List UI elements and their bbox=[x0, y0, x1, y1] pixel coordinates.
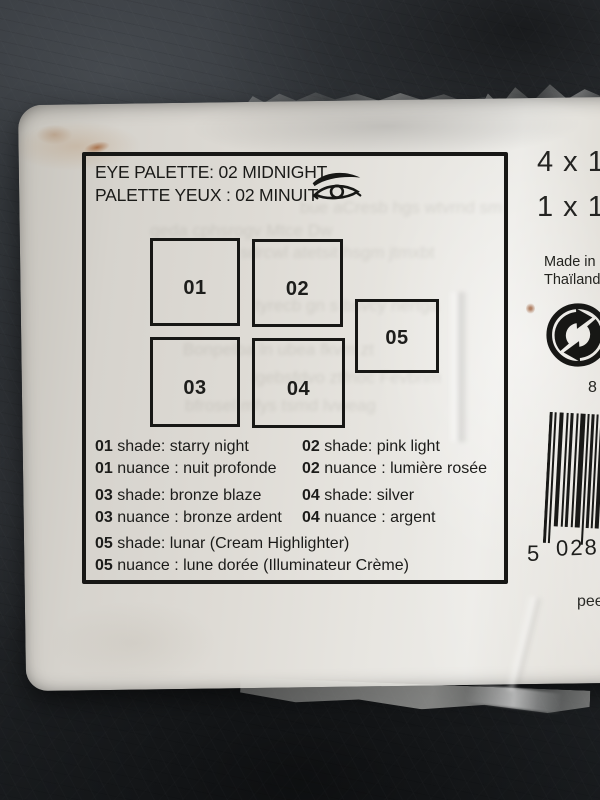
shade-entry-05: 05 shade: lunar (Cream Highlighter) 05 n… bbox=[95, 533, 409, 576]
eye-icon bbox=[308, 167, 364, 207]
pan-number: 05 bbox=[385, 327, 408, 350]
shade-line-en: 04 shade: silver bbox=[302, 485, 435, 507]
shade-entry-04: 04 shade: silver 04 nuance : argent bbox=[302, 485, 435, 528]
pan-number: 01 bbox=[183, 277, 206, 300]
made-in-text: Made in bbox=[544, 253, 596, 272]
palette-title: EYE PALETTE: 02 MIDNIGHT PALETTE YEUX : … bbox=[95, 161, 327, 207]
peel-text: peel bbox=[577, 593, 600, 611]
pan-box-02: 02 bbox=[252, 239, 343, 327]
pan-box-03: 03 bbox=[150, 337, 240, 427]
pan-number: 03 bbox=[183, 377, 206, 400]
pan-number: 02 bbox=[286, 278, 309, 301]
shade-entry-03: 03 shade: bronze blaze 03 nuance : bronz… bbox=[95, 485, 282, 528]
green-dot-recycling-icon bbox=[545, 297, 600, 373]
quantity-text-2: 1 x 1 bbox=[537, 191, 600, 224]
made-in-country-text: Thaïlande bbox=[544, 271, 600, 290]
shade-line-fr: 02 nuance : lumière rosée bbox=[302, 458, 487, 480]
shade-line-en: 03 shade: bronze blaze bbox=[95, 485, 282, 507]
pan-box-05: 05 bbox=[355, 299, 439, 373]
shade-entry-01: 01 shade: starry night 01 nuance : nuit … bbox=[95, 436, 276, 479]
quantity-text-1: 4 x 1 bbox=[537, 146, 600, 179]
shade-line-en: 05 shade: lunar (Cream Highlighter) bbox=[95, 533, 409, 555]
shade-entry-02: 02 shade: pink light 02 nuance : lumière… bbox=[302, 436, 487, 479]
shade-line-fr: 01 nuance : nuit profonde bbox=[95, 458, 276, 480]
printed-content: bue aCresb hgs wtvrnd sm qeda cphsrogv M… bbox=[0, 0, 600, 800]
shade-line-en: 01 shade: starry night bbox=[95, 436, 276, 458]
pan-number: 04 bbox=[287, 378, 310, 401]
shade-line-en: 02 shade: pink light bbox=[302, 436, 487, 458]
shade-line-fr: 04 nuance : argent bbox=[302, 507, 435, 529]
barcode-digit-left: 5 bbox=[527, 541, 539, 567]
palette-title-fr: PALETTE YEUX : 02 MINUIT bbox=[95, 184, 327, 207]
shade-line-fr: 03 nuance : bronze ardent bbox=[95, 507, 282, 529]
shade-line-fr: 05 nuance : lune dorée (Illuminateur Crè… bbox=[95, 555, 409, 577]
palette-title-en: EYE PALETTE: 02 MIDNIGHT bbox=[95, 161, 327, 184]
photo-of-product-label: bue aCresb hgs wtvrnd sm qeda cphsrogv M… bbox=[0, 0, 600, 800]
pan-box-04: 04 bbox=[252, 338, 345, 428]
barcode-digits: 028 bbox=[556, 534, 600, 561]
partial-number-text: 8 bbox=[588, 379, 597, 397]
pan-box-01: 01 bbox=[150, 238, 240, 326]
